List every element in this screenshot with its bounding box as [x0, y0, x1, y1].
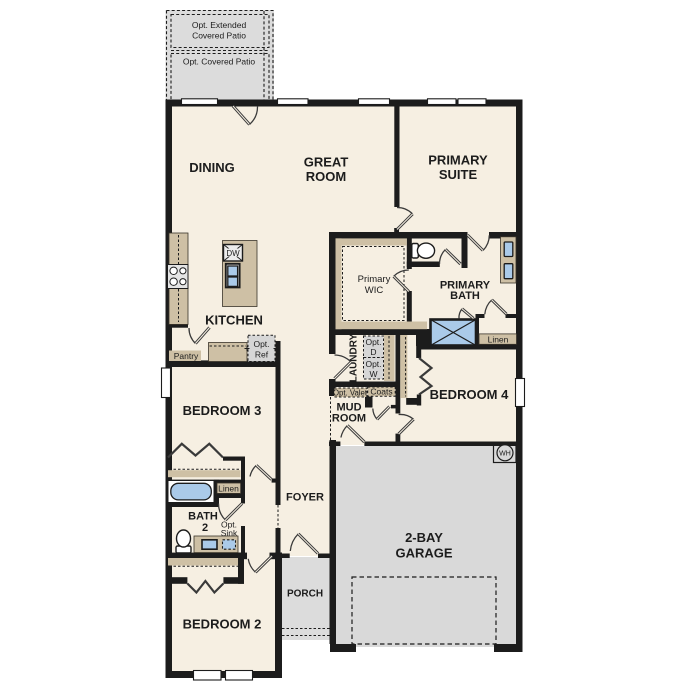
svg-text:Linen: Linen — [488, 334, 509, 344]
svg-text:Primary: Primary — [358, 274, 391, 285]
svg-text:SUITE: SUITE — [439, 167, 478, 182]
svg-text:Opt.: Opt. — [365, 337, 381, 347]
svg-text:Covered Patio: Covered Patio — [192, 31, 246, 41]
svg-text:GREAT: GREAT — [304, 155, 349, 170]
svg-text:LAUNDRY: LAUNDRY — [349, 333, 360, 382]
svg-text:Opt. Covered Patio: Opt. Covered Patio — [183, 57, 256, 67]
svg-text:KITCHEN: KITCHEN — [205, 313, 263, 328]
svg-text:FOYER: FOYER — [286, 492, 324, 504]
svg-text:D: D — [370, 347, 376, 357]
svg-text:ROOM: ROOM — [306, 169, 346, 184]
svg-text:Ref: Ref — [255, 350, 269, 360]
svg-text:BATH: BATH — [450, 290, 480, 302]
svg-text:W: W — [369, 369, 377, 379]
svg-text:Opt. Extended: Opt. Extended — [192, 20, 247, 30]
svg-text:Linen: Linen — [218, 484, 239, 494]
svg-text:2-BAY: 2-BAY — [405, 530, 443, 545]
svg-text:WIC: WIC — [365, 285, 384, 296]
svg-text:Opt. Valet: Opt. Valet — [333, 388, 368, 397]
svg-text:DINING: DINING — [189, 160, 235, 175]
svg-text:BATH: BATH — [188, 511, 218, 523]
svg-text:BEDROOM 3: BEDROOM 3 — [183, 403, 262, 418]
svg-text:WH: WH — [499, 451, 511, 458]
svg-text:BEDROOM 2: BEDROOM 2 — [183, 617, 262, 632]
svg-text:BEDROOM 4: BEDROOM 4 — [430, 387, 510, 402]
svg-text:ROOM: ROOM — [332, 413, 366, 425]
svg-text:PORCH: PORCH — [287, 589, 323, 600]
svg-text:Coats: Coats — [370, 387, 392, 397]
svg-text:GARAGE: GARAGE — [395, 546, 452, 561]
svg-text:PRIMARY: PRIMARY — [428, 153, 488, 168]
svg-text:Opt.: Opt. — [253, 339, 269, 349]
svg-text:Pantry: Pantry — [174, 351, 199, 361]
svg-text:DW: DW — [226, 249, 240, 258]
svg-text:2: 2 — [202, 522, 208, 534]
svg-text:Opt.: Opt. — [365, 359, 381, 369]
